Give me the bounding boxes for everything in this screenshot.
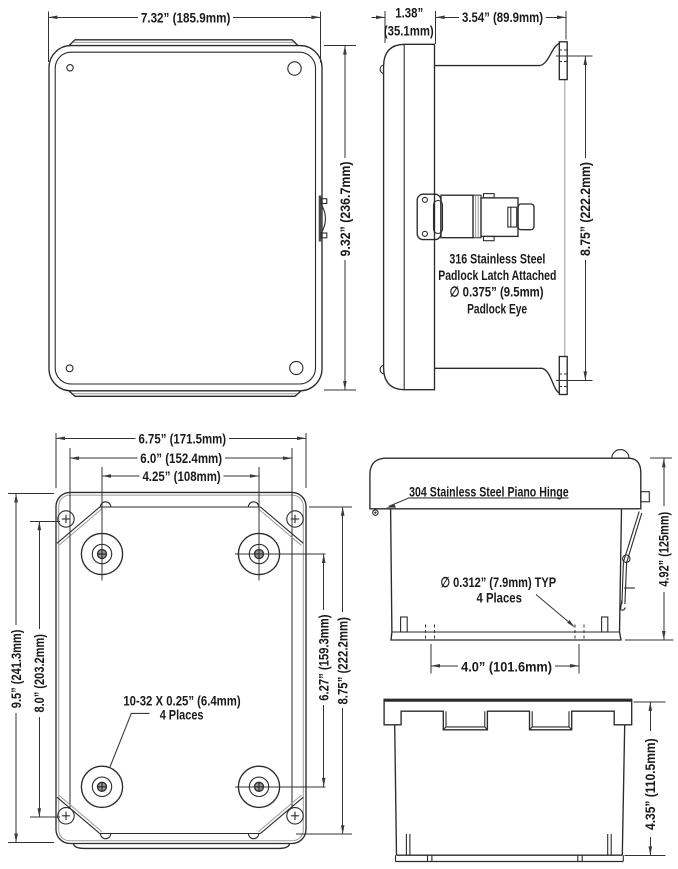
svg-text:3.54” (89.9mm): 3.54” (89.9mm) [462,9,543,25]
svg-text:6.0” (152.4mm): 6.0” (152.4mm) [140,450,222,466]
svg-text:4 Places: 4 Places [160,707,204,723]
svg-text:9.5” (241.3mm): 9.5” (241.3mm) [8,630,24,709]
svg-text:4.25” (108mm): 4.25” (108mm) [142,468,220,484]
svg-text:1.38”: 1.38” [395,5,423,21]
svg-text:Padlock Eye: Padlock Eye [467,300,527,316]
svg-text:7.32” (185.9mm): 7.32” (185.9mm) [141,9,231,25]
svg-text:316 Stainless Steel: 316 Stainless Steel [449,251,545,267]
svg-text:4 Places: 4 Places [477,590,523,606]
svg-text:Padlock Latch Attached: Padlock Latch Attached [438,267,556,283]
svg-text:4.92” (125mm): 4.92” (125mm) [656,512,672,587]
svg-text:∅ 0.375” (9.5mm): ∅ 0.375” (9.5mm) [450,284,544,300]
svg-text:4.35” (110.5mm): 4.35” (110.5mm) [642,738,658,830]
svg-text:(35.1mm): (35.1mm) [384,23,434,39]
svg-text:∅ 0.312” (7.9mm) TYP: ∅ 0.312” (7.9mm) TYP [440,574,556,590]
svg-text:8.0” (203.2mm): 8.0” (203.2mm) [31,634,47,713]
svg-text:8.75” (222.2mm): 8.75” (222.2mm) [577,162,593,256]
svg-text:304 Stainless Steel Piano Hing: 304 Stainless Steel Piano Hinge [409,483,569,499]
svg-text:6.27” (159.3mm): 6.27” (159.3mm) [316,614,332,700]
svg-text:9.32” (236.7mm): 9.32” (236.7mm) [337,162,353,257]
svg-text:6.75” (171.5mm): 6.75” (171.5mm) [139,430,227,446]
svg-text:8.75” (222.2mm): 8.75” (222.2mm) [335,617,351,705]
svg-text:4.0” (101.6mm): 4.0” (101.6mm) [461,658,552,674]
